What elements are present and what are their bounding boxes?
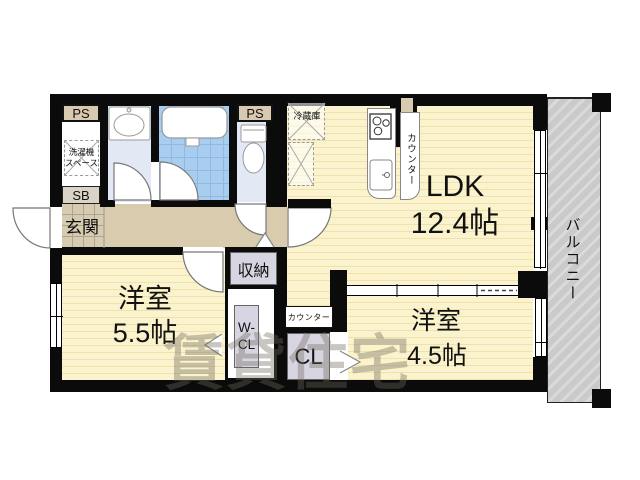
window-western1-tick — [51, 316, 63, 317]
wall-washroom-bath — [151, 94, 159, 162]
kitchen-duct-notch — [401, 98, 413, 112]
balcony-label: バルコニー — [559, 200, 585, 318]
western1-door-opening — [183, 247, 223, 255]
wall-partition-right-block — [518, 271, 547, 298]
window-western2-tick — [536, 342, 548, 343]
entrance-door-swing-arc — [13, 208, 50, 248]
window-western2-centerline — [541, 299, 542, 358]
wall-partition-left-block — [330, 270, 347, 306]
window-western1 — [50, 283, 62, 348]
shoe-box: SB — [62, 186, 100, 204]
balcony-pillar-bottom — [592, 389, 611, 408]
western1-label: 洋室 — [83, 281, 207, 311]
window-ldk-centerline — [540, 131, 541, 269]
wall-western1-top — [50, 247, 183, 255]
wall-left-upper — [50, 94, 62, 207]
washer-space-line2: スペース — [65, 158, 98, 168]
entrance-label: 玄関 — [58, 215, 106, 235]
balcony-pillar-top — [592, 93, 611, 112]
watermark: 賃貸住宅 — [164, 316, 454, 400]
bath-door-opening — [151, 162, 159, 200]
pipe-space-right: PS — [237, 104, 273, 122]
storage-box: 収納 — [230, 252, 277, 285]
wall-hall-top-b — [151, 200, 235, 207]
sliding-partition — [347, 285, 518, 296]
washroom-floor — [108, 106, 151, 202]
washer-space-line1: 洗濯機 — [69, 147, 95, 157]
appliance-space-box — [288, 142, 314, 186]
shoe-box-label: SB — [72, 188, 89, 203]
wall-column-mid-upper — [278, 247, 287, 306]
washer-space-label: 洗濯機 スペース — [64, 144, 99, 172]
window-ldk-tick — [535, 173, 547, 174]
wall-bath-toilet — [229, 94, 237, 207]
wall-right-bottom — [533, 357, 547, 392]
wall-hall-top-a — [100, 200, 115, 207]
ldk-floor-nook — [287, 285, 330, 306]
wall-hall-top-c — [266, 200, 287, 207]
floor-plan: PS PS SB 収納 W- CL CL カウンター — [0, 0, 640, 480]
window-western2 — [535, 298, 547, 357]
bathroom-floor — [159, 106, 229, 202]
fridge-label: 冷蔵庫 — [289, 109, 325, 121]
pipe-space-right-label: PS — [246, 106, 263, 121]
wall-washroom-left — [100, 94, 108, 207]
toilet-floor — [237, 122, 266, 202]
ldk-size: 12.4帖 — [385, 204, 525, 236]
wall-right-top — [533, 94, 547, 130]
washer-space-label-lines: 洗濯機 スペース — [65, 147, 98, 169]
pipe-space-left-label: PS — [72, 106, 89, 121]
window-ldk — [534, 130, 546, 268]
pipe-space-left: PS — [62, 104, 100, 122]
storage-label: 収納 — [237, 257, 269, 281]
kitchen-unit — [367, 108, 396, 199]
